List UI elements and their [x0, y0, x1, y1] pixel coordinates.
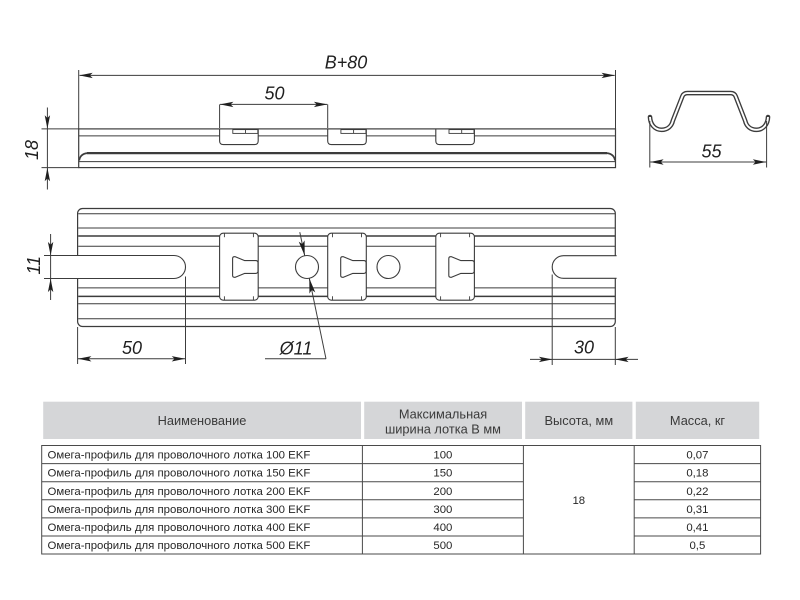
svg-text:Масса, кг: Масса, кг	[670, 413, 726, 428]
svg-text:Омега-профиль для проволочного: Омега-профиль для проволочного лотка 100…	[48, 450, 311, 462]
svg-text:55: 55	[701, 142, 722, 162]
svg-text:500: 500	[433, 540, 452, 552]
svg-text:30: 30	[574, 338, 594, 358]
svg-text:0,41: 0,41	[686, 522, 708, 534]
svg-text:ширина лотка В мм: ширина лотка В мм	[385, 422, 501, 437]
svg-text:Омега-профиль для проволочного: Омега-профиль для проволочного лотка 400…	[48, 522, 311, 534]
svg-text:200: 200	[433, 486, 452, 498]
svg-text:Высота, мм: Высота, мм	[544, 413, 613, 428]
svg-text:300: 300	[433, 504, 452, 516]
svg-text:0,22: 0,22	[686, 486, 708, 498]
svg-text:Омега-профиль для проволочного: Омега-профиль для проволочного лотка 500…	[48, 540, 311, 552]
svg-text:50: 50	[122, 338, 142, 358]
svg-text:Омега-профиль для проволочного: Омега-профиль для проволочного лотка 300…	[48, 504, 311, 516]
svg-text:Омега-профиль для проволочного: Омега-профиль для проволочного лотка 200…	[48, 486, 311, 498]
svg-text:Наименование: Наименование	[158, 413, 247, 428]
svg-text:150: 150	[433, 468, 452, 480]
svg-text:Максимальная: Максимальная	[399, 407, 487, 422]
svg-text:100: 100	[433, 450, 452, 462]
svg-text:11: 11	[24, 256, 44, 275]
svg-text:0,5: 0,5	[689, 540, 705, 552]
svg-text:400: 400	[433, 522, 452, 534]
svg-text:0,07: 0,07	[686, 450, 708, 462]
svg-text:50: 50	[264, 84, 284, 104]
svg-text:18: 18	[572, 495, 585, 507]
svg-text:0,31: 0,31	[686, 504, 708, 516]
svg-text:Омега-профиль для проволочного: Омега-профиль для проволочного лотка 150…	[48, 468, 311, 480]
svg-text:B+80: B+80	[325, 53, 368, 73]
svg-text:0,18: 0,18	[686, 468, 708, 480]
svg-text:Ø11: Ø11	[279, 339, 313, 359]
svg-text:18: 18	[22, 140, 42, 160]
